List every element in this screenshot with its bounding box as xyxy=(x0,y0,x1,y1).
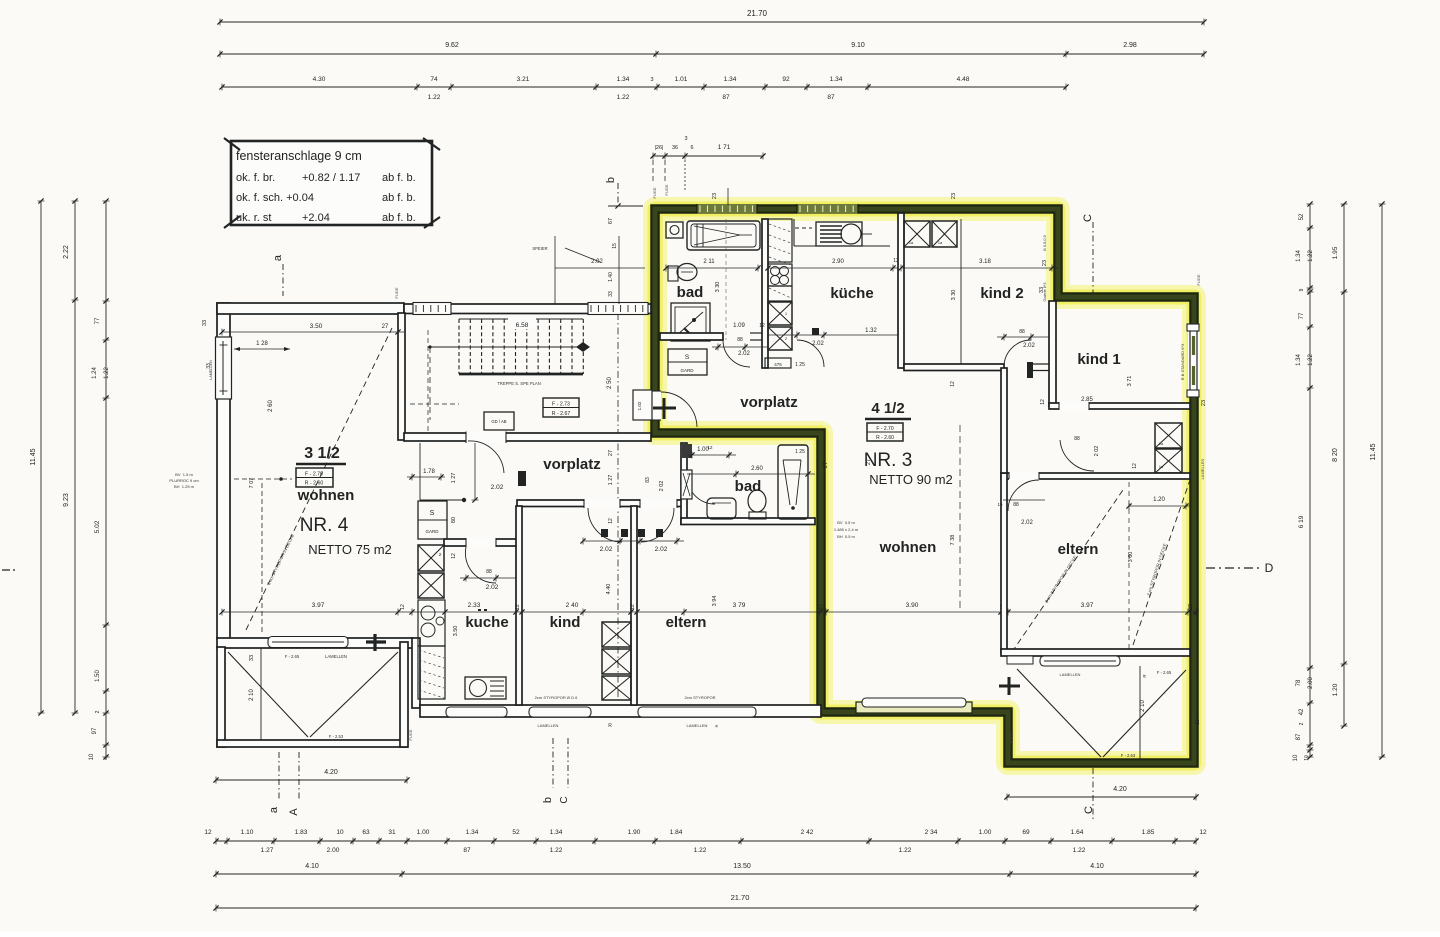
svg-text:LAMELLEN: LAMELLEN xyxy=(1200,458,1205,479)
svg-text:FUGE: FUGE xyxy=(1196,274,1201,285)
svg-text:12: 12 xyxy=(1040,399,1046,405)
svg-text:3.18: 3.18 xyxy=(979,259,991,265)
svg-text:1.40: 1.40 xyxy=(608,272,614,282)
svg-text:15: 15 xyxy=(612,243,618,249)
svg-text:12: 12 xyxy=(759,323,765,329)
svg-text:23: 23 xyxy=(1188,604,1194,610)
svg-text:33: 33 xyxy=(202,320,208,326)
svg-text:FUGE: FUGE xyxy=(408,729,413,740)
svg-text:S: S xyxy=(685,354,690,361)
svg-text:FUGE: FUGE xyxy=(1009,732,1014,743)
svg-text:88: 88 xyxy=(486,569,492,575)
svg-text:kind 1: kind 1 xyxy=(1077,351,1120,368)
svg-text:3 94: 3 94 xyxy=(712,596,718,607)
svg-text:3: 3 xyxy=(650,77,653,83)
svg-text:1.22: 1.22 xyxy=(617,94,630,101)
svg-text:88: 88 xyxy=(1074,436,1080,442)
svg-text:2.02: 2.02 xyxy=(491,484,504,491)
svg-text:4.10: 4.10 xyxy=(1090,863,1104,870)
svg-text:3 30: 3 30 xyxy=(715,282,721,293)
svg-text:67: 67 xyxy=(608,218,614,224)
svg-text:83: 83 xyxy=(645,477,651,483)
svg-text:GD / AB: GD / AB xyxy=(491,419,506,424)
svg-text:bad: bad xyxy=(735,478,762,495)
svg-text:2.85: 2.85 xyxy=(1081,397,1093,403)
svg-text:F - 2.65: F - 2.65 xyxy=(285,654,300,659)
svg-text:7 38: 7 38 xyxy=(950,535,956,546)
svg-text:1.83: 1.83 xyxy=(295,829,308,836)
svg-text:3.97: 3.97 xyxy=(1081,602,1094,609)
svg-text:27: 27 xyxy=(382,324,389,330)
svg-text:4.30: 4.30 xyxy=(313,76,326,83)
svg-text:12: 12 xyxy=(515,604,521,610)
svg-text:10: 10 xyxy=(1304,755,1310,761)
svg-text:12: 12 xyxy=(707,445,713,450)
svg-text:1.32: 1.32 xyxy=(865,328,877,334)
svg-text:LAMELLEN: LAMELLEN xyxy=(1060,672,1081,677)
svg-text:87: 87 xyxy=(722,94,730,101)
svg-text:36: 36 xyxy=(672,145,678,151)
svg-text:1.22: 1.22 xyxy=(1073,847,1086,854)
svg-text:NETTO 90 m2: NETTO 90 m2 xyxy=(869,472,953,487)
svg-text:TREPPE S. SPE PLAN: TREPPE S. SPE PLAN xyxy=(497,381,541,386)
svg-text:SPEIER: SPEIER xyxy=(532,246,547,251)
svg-text:2 50: 2 50 xyxy=(607,377,613,389)
svg-text:4.10: 4.10 xyxy=(305,863,319,870)
svg-text:2 40: 2 40 xyxy=(566,602,579,609)
svg-text:87: 87 xyxy=(827,94,835,101)
svg-text:23: 23 xyxy=(1201,400,1207,406)
svg-text:77: 77 xyxy=(1299,312,1305,319)
svg-text:88: 88 xyxy=(1013,502,1019,508)
svg-text:4.20: 4.20 xyxy=(324,769,338,776)
svg-text:1.01: 1.01 xyxy=(675,76,688,83)
svg-text:1.84: 1.84 xyxy=(670,829,683,836)
svg-text:2.00: 2.00 xyxy=(1308,677,1314,689)
svg-text:4.40: 4.40 xyxy=(606,584,612,595)
svg-text:BV 0.5 m: BV 0.5 m xyxy=(837,520,855,525)
svg-text:ab f. b.: ab f. b. xyxy=(382,212,416,224)
svg-text:2 02: 2 02 xyxy=(659,481,665,492)
svg-text:A: A xyxy=(288,808,300,816)
svg-text:63: 63 xyxy=(362,829,370,836)
svg-text:wohnen: wohnen xyxy=(879,539,937,556)
svg-text:12: 12 xyxy=(1132,463,1138,469)
svg-text:BH 0.5 m: BH 0.5 m xyxy=(837,534,855,539)
svg-text:12: 12 xyxy=(950,381,956,387)
svg-text:PLURROC 9 cm: PLURROC 9 cm xyxy=(169,478,199,483)
svg-text:3.50: 3.50 xyxy=(453,626,459,637)
svg-text:3.21: 3.21 xyxy=(517,76,530,83)
svg-text:R - 2.67: R - 2.67 xyxy=(552,411,571,417)
svg-text:eltern: eltern xyxy=(1058,541,1099,558)
svg-text:1 27: 1 27 xyxy=(451,473,457,484)
svg-text:1.64: 1.64 xyxy=(1071,829,1084,836)
svg-text:C: C xyxy=(559,796,570,803)
svg-text:2 11: 2 11 xyxy=(703,259,715,265)
svg-text:23: 23 xyxy=(1042,260,1048,266)
svg-text:92: 92 xyxy=(782,76,790,83)
svg-text:88: 88 xyxy=(1019,329,1025,335)
svg-text:ab f. b.: ab f. b. xyxy=(382,192,416,204)
svg-text:9.10: 9.10 xyxy=(851,42,865,49)
svg-text:FUGE: FUGE xyxy=(664,184,669,195)
svg-text:16: 16 xyxy=(997,502,1003,507)
svg-text:1.20: 1.20 xyxy=(1332,683,1339,696)
svg-text:NR. 3: NR. 3 xyxy=(864,450,913,471)
svg-text:1.50: 1.50 xyxy=(95,670,101,682)
svg-text:GARD: GARD xyxy=(680,368,694,373)
svg-text:NR. 4: NR. 4 xyxy=(300,515,349,536)
svg-text:52: 52 xyxy=(1299,213,1305,220)
svg-text:LAMELLEN: LAMELLEN xyxy=(538,723,559,728)
svg-text:1.34: 1.34 xyxy=(1296,354,1302,366)
svg-text:2.60: 2.60 xyxy=(751,466,763,472)
svg-text:3.50: 3.50 xyxy=(310,323,323,330)
svg-text:2.02: 2.02 xyxy=(591,259,603,265)
svg-text:BV 1.5 m: BV 1.5 m xyxy=(175,472,193,477)
svg-text:3 79: 3 79 xyxy=(733,602,746,609)
svg-text:R: R xyxy=(608,723,612,729)
svg-text:69: 69 xyxy=(1022,829,1030,836)
svg-text:33: 33 xyxy=(249,655,255,661)
svg-text:27: 27 xyxy=(823,462,829,468)
svg-text:12: 12 xyxy=(1199,829,1207,836)
svg-text:77: 77 xyxy=(95,317,101,324)
svg-text:1.34: 1.34 xyxy=(550,829,563,836)
svg-text:475: 475 xyxy=(774,362,782,367)
svg-text:2 42: 2 42 xyxy=(801,829,814,836)
svg-text:10: 10 xyxy=(1195,719,1201,725)
svg-text:1.27: 1.27 xyxy=(261,847,274,854)
svg-text:fensteranschlage 9 cm: fensteranschlage 9 cm xyxy=(236,149,362,163)
svg-text:1.90: 1.90 xyxy=(628,829,641,836)
svg-text:1.34: 1.34 xyxy=(724,76,737,83)
svg-text:33: 33 xyxy=(1039,287,1045,293)
svg-text:6 19: 6 19 xyxy=(1298,515,1305,528)
svg-text:2.22: 2.22 xyxy=(63,245,70,259)
svg-text:C: C xyxy=(1083,806,1095,814)
svg-text:3: 3 xyxy=(684,136,687,142)
svg-text:a: a xyxy=(272,254,284,261)
svg-text:33: 33 xyxy=(608,291,614,297)
svg-text:2.02: 2.02 xyxy=(486,584,499,591)
svg-text:21.70: 21.70 xyxy=(731,893,750,902)
svg-text:2 60: 2 60 xyxy=(268,400,274,412)
svg-text:9.62: 9.62 xyxy=(445,42,459,49)
svg-text:1.09: 1.09 xyxy=(733,323,745,329)
svg-text:1.34: 1.34 xyxy=(466,829,479,836)
svg-text:11.45: 11.45 xyxy=(30,448,37,465)
svg-text:b: b xyxy=(542,797,554,803)
svg-text:12: 12 xyxy=(204,829,212,836)
svg-text:ab f. b.: ab f. b. xyxy=(382,172,416,184)
svg-text:2 10: 2 10 xyxy=(1140,700,1146,712)
svg-text:GARD: GARD xyxy=(425,529,439,534)
svg-text:BH 1.25 m: BH 1.25 m xyxy=(174,484,195,489)
svg-text:kind 2: kind 2 xyxy=(980,285,1023,302)
svg-text:74: 74 xyxy=(430,76,438,83)
svg-text:87: 87 xyxy=(463,847,471,854)
svg-text:4.48: 4.48 xyxy=(957,76,970,83)
svg-text:1 28: 1 28 xyxy=(256,341,268,347)
svg-text:F - 2.65: F - 2.65 xyxy=(1157,670,1172,675)
svg-text:F - 2.63: F - 2.63 xyxy=(1121,753,1136,758)
svg-text:3 71: 3 71 xyxy=(1127,376,1133,387)
svg-text:27: 27 xyxy=(819,604,825,610)
svg-text:1.10: 1.10 xyxy=(241,829,254,836)
svg-text:F - 2.53: F - 2.53 xyxy=(329,734,344,739)
svg-text:2.02: 2.02 xyxy=(655,546,668,553)
svg-text:B 0.5-0.9: B 0.5-0.9 xyxy=(1043,235,1047,250)
svg-text:1 25: 1 25 xyxy=(795,449,805,455)
svg-text:97: 97 xyxy=(92,727,98,734)
svg-text:9.23: 9.23 xyxy=(63,493,70,507)
svg-text:wohnen: wohnen xyxy=(297,487,355,504)
svg-text:2.02: 2.02 xyxy=(1023,343,1035,349)
svg-text:4.20: 4.20 xyxy=(1113,786,1127,793)
svg-text:3.97: 3.97 xyxy=(312,602,325,609)
svg-text:10: 10 xyxy=(89,753,95,760)
svg-text:|26|: |26| xyxy=(655,145,664,151)
svg-text:2cm STYROPOR Ø D 6: 2cm STYROPOR Ø D 6 xyxy=(535,695,578,700)
svg-text:1.34: 1.34 xyxy=(617,76,630,83)
svg-text:3 30: 3 30 xyxy=(951,290,957,301)
svg-text:3.90: 3.90 xyxy=(906,602,919,609)
svg-text:+2.04: +2.04 xyxy=(302,212,330,224)
svg-text:ok. f. sch. +0.04: ok. f. sch. +0.04 xyxy=(236,192,314,204)
svg-text:12: 12 xyxy=(608,518,614,524)
svg-text:8 20: 8 20 xyxy=(1332,448,1339,462)
svg-text:1.22: 1.22 xyxy=(428,94,441,101)
svg-text:2.98: 2.98 xyxy=(1123,42,1137,49)
svg-text:31: 31 xyxy=(388,829,396,836)
svg-text:D: D xyxy=(1265,561,1274,575)
svg-text:10: 10 xyxy=(336,829,344,836)
svg-text:2.02: 2.02 xyxy=(738,351,750,357)
svg-text:R - 2.60: R - 2.60 xyxy=(876,435,894,441)
svg-text:kuche: kuche xyxy=(465,614,508,631)
svg-text:27: 27 xyxy=(608,450,614,456)
svg-text:88: 88 xyxy=(737,337,743,343)
svg-text:R - 2.60: R - 2.60 xyxy=(305,481,324,487)
svg-text:2.02: 2.02 xyxy=(600,546,613,553)
svg-text:1 71: 1 71 xyxy=(718,144,731,151)
svg-text:LAMELLEN: LAMELLEN xyxy=(687,723,708,728)
svg-text:1.00: 1.00 xyxy=(979,829,992,836)
svg-text:+0.82 / 1.17: +0.82 / 1.17 xyxy=(302,172,360,184)
svg-text:1.02: 1.02 xyxy=(637,401,642,410)
svg-text:1.34: 1.34 xyxy=(830,76,843,83)
svg-text:S: S xyxy=(430,510,435,517)
svg-text:1.22: 1.22 xyxy=(104,367,110,379)
svg-text:42: 42 xyxy=(1299,708,1305,715)
svg-text:6: 6 xyxy=(690,145,693,151)
svg-text:1.78: 1.78 xyxy=(423,469,435,475)
svg-text:23: 23 xyxy=(951,193,957,199)
svg-text:1.22: 1.22 xyxy=(694,847,707,854)
svg-text:11.45: 11.45 xyxy=(1370,443,1377,460)
svg-text:1.00: 1.00 xyxy=(417,829,430,836)
svg-text:1.34: 1.34 xyxy=(1296,250,1302,262)
svg-text:2.00: 2.00 xyxy=(327,847,340,854)
svg-text:7 07: 7 07 xyxy=(249,478,255,489)
svg-text:2.33: 2.33 xyxy=(468,602,481,609)
svg-text:9: 9 xyxy=(1299,288,1305,291)
svg-text:bad: bad xyxy=(677,284,704,301)
svg-text:1.22: 1.22 xyxy=(899,847,912,854)
svg-text:1.22: 1.22 xyxy=(1308,250,1314,262)
svg-text:2.90: 2.90 xyxy=(832,259,844,265)
svg-text:LAMELLEN: LAMELLEN xyxy=(209,360,213,380)
svg-text:1.85: 1.85 xyxy=(1142,829,1155,836)
svg-text:87: 87 xyxy=(1296,733,1302,740)
svg-text:80: 80 xyxy=(451,517,457,523)
svg-text:2: 2 xyxy=(95,710,101,713)
svg-text:FUGE: FUGE xyxy=(394,287,399,298)
svg-text:4 1/2: 4 1/2 xyxy=(871,400,904,417)
svg-text:78: 78 xyxy=(1296,679,1302,686)
svg-text:21.70: 21.70 xyxy=(747,9,768,18)
svg-text:1.22: 1.22 xyxy=(550,847,563,854)
svg-text:33: 33 xyxy=(206,363,212,369)
svg-text:12: 12 xyxy=(630,604,636,610)
svg-text:ok. f. br.: ok. f. br. xyxy=(236,172,275,184)
svg-text:5.02: 5.02 xyxy=(94,520,101,533)
svg-text:kind: kind xyxy=(550,614,581,631)
svg-text:1.24: 1.24 xyxy=(92,367,98,379)
svg-text:uk. r. st: uk. r. st xyxy=(236,212,271,224)
svg-text:b: b xyxy=(605,177,617,183)
svg-text:52: 52 xyxy=(512,829,520,836)
svg-text:2 10: 2 10 xyxy=(249,689,255,701)
svg-text:NETTO 75 m2: NETTO 75 m2 xyxy=(308,542,392,557)
svg-text:R B STANDARD 6*3: R B STANDARD 6*3 xyxy=(1180,343,1185,380)
svg-text:2 34: 2 34 xyxy=(925,829,938,836)
svg-text:2 02: 2 02 xyxy=(1094,446,1100,457)
svg-text:küche: küche xyxy=(830,285,873,302)
svg-text:1.22: 1.22 xyxy=(1308,354,1314,366)
svg-text:23: 23 xyxy=(712,193,718,199)
svg-text:1.20: 1.20 xyxy=(1153,497,1165,503)
svg-text:F - 2.70: F - 2.70 xyxy=(876,426,893,432)
svg-text:13.50: 13.50 xyxy=(733,863,751,870)
svg-text:C: C xyxy=(1082,214,1094,222)
svg-text:1.95: 1.95 xyxy=(1332,246,1339,259)
svg-text:eltern: eltern xyxy=(666,614,707,631)
svg-text:2: 2 xyxy=(1299,722,1305,725)
svg-text:vorplatz: vorplatz xyxy=(740,394,798,411)
svg-text:6.58: 6.58 xyxy=(516,322,529,329)
svg-text:3 60: 3 60 xyxy=(1128,552,1134,563)
svg-text:1.485 x 2.4 m: 1.485 x 2.4 m xyxy=(834,527,859,532)
svg-text:2cm STYROPOR: 2cm STYROPOR xyxy=(684,695,715,700)
svg-text:1 27: 1 27 xyxy=(608,475,614,486)
svg-text:vorplatz: vorplatz xyxy=(543,456,601,473)
svg-text:F - 2.73: F - 2.73 xyxy=(552,402,570,408)
svg-text:12: 12 xyxy=(451,553,457,559)
svg-text:R: R xyxy=(714,724,719,727)
svg-text:LAMELLEN: LAMELLEN xyxy=(325,654,347,659)
svg-text:a: a xyxy=(268,806,280,813)
svg-text:FUGE: FUGE xyxy=(652,187,657,198)
svg-text:10: 10 xyxy=(1293,754,1299,761)
svg-text:1 25: 1 25 xyxy=(795,362,805,368)
svg-text:2.02: 2.02 xyxy=(1021,520,1033,526)
svg-text:2.02: 2.02 xyxy=(812,341,824,347)
svg-text:12: 12 xyxy=(400,604,406,610)
